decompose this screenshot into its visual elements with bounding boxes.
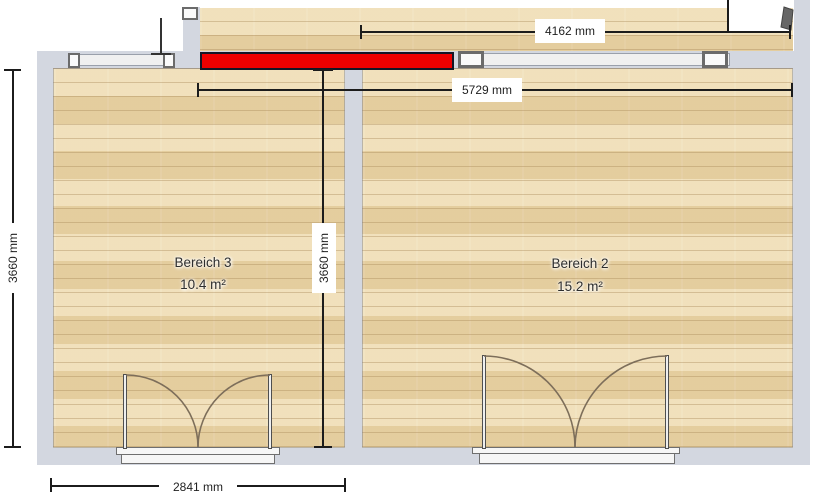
window-top-glass[interactable]: [458, 53, 730, 66]
wall-right-upper[interactable]: [794, 0, 810, 51]
room-area-bereich2: 15.2 m²: [520, 279, 640, 294]
dim-label-3660-mid[interactable]: 3660 mm: [312, 223, 336, 293]
dim-label-4162[interactable]: 4162 mm: [535, 19, 605, 43]
room-name-bereich2: Bereich 2: [520, 256, 640, 271]
door1-leaf-left[interactable]: [123, 374, 127, 449]
window-left-glass[interactable]: [68, 54, 175, 66]
door1-sill-inner: [121, 454, 275, 464]
window-top-bracket-end: [702, 51, 728, 68]
dim-tick: [197, 83, 199, 97]
selected-wall-segment[interactable]: [200, 52, 454, 70]
door1-leaf-right[interactable]: [268, 374, 272, 449]
room-name-bereich3: Bereich 3: [143, 255, 263, 270]
window-top-bracket-start: [458, 51, 484, 68]
dim-tick: [151, 53, 171, 55]
dim-label-5729[interactable]: 5729 mm: [452, 78, 522, 102]
window-marker-upper-wall[interactable]: [182, 7, 198, 20]
door2-leaf-right[interactable]: [665, 355, 669, 449]
door2-leaf-left[interactable]: [482, 355, 486, 449]
dim-tick: [313, 69, 333, 71]
dim-tick: [344, 478, 346, 492]
room-area-bereich3: 10.4 m²: [143, 277, 263, 292]
dim-tick: [4, 69, 21, 71]
upper-side-room[interactable]: [727, 0, 790, 33]
dim-tick: [50, 478, 52, 492]
door2-sill-inner: [479, 453, 675, 464]
window-left-bracket-start: [68, 53, 80, 68]
dim-label-3660-left[interactable]: 3660 mm: [1, 223, 25, 293]
dim-tick: [791, 83, 793, 97]
dim-line-partial-top: [160, 18, 162, 54]
dim-tick: [4, 446, 21, 448]
dim-tick: [789, 25, 791, 39]
window-left-bracket-end: [163, 53, 175, 68]
dim-label-2841[interactable]: 2841 mm: [159, 478, 237, 496]
floorplan-canvas: 4162 mm 5729 mm 3660 mm 3660 mm 2841 mm …: [0, 0, 820, 498]
dim-tick: [314, 446, 332, 448]
dim-tick: [360, 25, 362, 39]
upper-room-floor[interactable]: [200, 8, 793, 51]
